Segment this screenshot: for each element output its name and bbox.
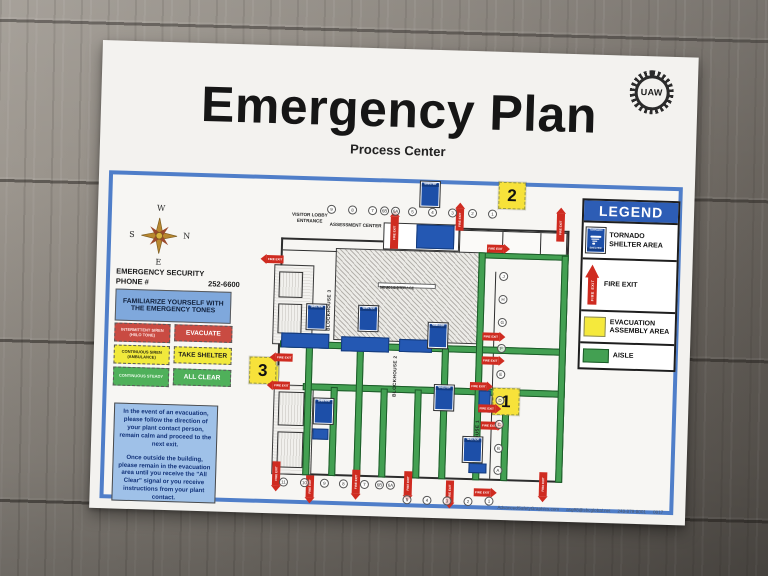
grid-col-bottom: 7 xyxy=(360,480,369,489)
tone-row-evacuate: INTERMITTENT SIREN (HI/LO TONE) EVACUATE xyxy=(114,322,233,344)
grid-col-bottom: 11 xyxy=(279,477,288,486)
aisle-horizontal-topright xyxy=(479,252,569,261)
grid-col-bottom: 8 xyxy=(339,479,348,488)
fire-exit-arrow-down-3: FIRE EXIT xyxy=(352,470,361,494)
sign-word-shelter: SHELTER xyxy=(587,248,604,251)
fire-exit-arrow-left-1: FIRE EXIT xyxy=(266,255,283,264)
grid-col-top: 4 xyxy=(428,208,437,217)
aisle-vertical-3 xyxy=(353,346,364,477)
tone-action-allclear: ALL CLEAR xyxy=(173,368,231,387)
evacuation-area-swatch-icon xyxy=(583,316,606,337)
legend-row-tornado: TORNADO SHELTER TORNADO SHELTER AREA xyxy=(583,220,678,260)
tornado-sign-mid-right: TORNADOSHELTER xyxy=(428,323,448,349)
tone-signal-allclear: CONTINUOUS STEADY xyxy=(113,366,170,387)
legend-label-evacuation-area: EVACUATION ASSEMBLY AREA xyxy=(609,319,671,338)
grid-col-top: 2 xyxy=(468,209,477,218)
tornado-sign-low-center: TORNADOSHELTER xyxy=(434,385,454,411)
fire-exit-arrow-text: FIRE EXIT xyxy=(590,280,595,302)
fire-exit-arrow-right-2: FIRE EXIT xyxy=(482,332,499,341)
fire-exit-arrow-left-3: FIRE EXIT xyxy=(273,381,290,390)
aisle-vertical-4 xyxy=(378,388,388,477)
fire-exit-arrow-down-4: FIRE EXIT xyxy=(404,471,413,495)
vehicle-storage-area: VEHICLE STORAGE 147,000 SQ FT xyxy=(333,248,480,344)
visitor-lobby-label: VISITOR LOBBY ENTRANCE xyxy=(286,212,334,225)
compass-west-label: W xyxy=(157,204,165,213)
notice-paragraph-1: In the event of an evacuation, please fo… xyxy=(117,408,214,450)
evacuation-notice: In the event of an evacuation, please fo… xyxy=(111,402,218,503)
aisle-vertical-5 xyxy=(412,389,422,478)
legend-row-evacuation-area: EVACUATION ASSEMBLY AREA xyxy=(580,309,675,344)
grid-col-top: 1 xyxy=(488,210,497,219)
grid-col-bottom: 9 xyxy=(320,479,329,488)
grid-col-top: 9 xyxy=(327,205,336,214)
tones-header-box: FAMILIARIZE YOURSELF WITH THE EMERGENCY … xyxy=(115,288,232,323)
legend-row-fire-exit: FIRE EXIT FIRE EXIT xyxy=(581,257,677,312)
security-phone: 252-6600 xyxy=(208,279,240,289)
tornado-sign-low-left: TORNADOSHELTER xyxy=(314,398,334,424)
tornado-sign-mid-center: TORNADOSHELTER xyxy=(358,306,378,332)
fire-exit-arrow-up-3: FIRE EXIT xyxy=(556,214,565,242)
vehicle-storage-sqft: 147,000 SQ FT xyxy=(380,285,405,290)
shelter-zone-2 xyxy=(341,336,389,352)
sign-word-tornado: TORNADO xyxy=(589,230,602,233)
tone-table: INTERMITTENT SIREN (HI/LO TONE) EVACUATE… xyxy=(113,322,233,388)
shelter-zone-annex xyxy=(416,224,455,249)
tone-action-shelter: TAKE SHELTER xyxy=(173,346,231,365)
compass-star-icon xyxy=(141,217,178,254)
compass-south-label: S xyxy=(129,230,135,239)
printer-phone: 248-879-8001 xyxy=(617,508,646,514)
emergency-plan-poster: Emergency Plan Process Center UAW W N S … xyxy=(89,40,699,525)
printer-code: 0817 xyxy=(653,510,663,515)
fire-exit-arrow-left-2: FIRE EXIT xyxy=(276,353,293,362)
aisle-swatch-icon xyxy=(583,348,609,363)
legend-label-aisle: AISLE xyxy=(613,352,634,361)
tone-signal-evacuate: INTERMITTENT SIREN (HI/LO TONE) xyxy=(114,322,171,343)
grid-col-bottom: 6B xyxy=(375,480,384,489)
emergency-security-block: EMERGENCY SECURITY PHONE # 252-6600 xyxy=(116,266,241,289)
photo-background: Emergency Plan Process Center UAW W N S … xyxy=(0,0,768,576)
printer-email: asg98@sbcglobal.net xyxy=(566,507,610,513)
compass-north-label: N xyxy=(183,231,190,240)
wall-top-left xyxy=(281,237,385,242)
shelter-zone-6 xyxy=(468,463,486,474)
legend-title: LEGEND xyxy=(584,200,679,223)
printer-website: AdvancedSafetyGraphics.com xyxy=(497,505,559,512)
fire-exit-arrow-right-1: FIRE EXIT xyxy=(487,244,504,253)
fire-exit-arrow-icon: FIRE EXIT xyxy=(584,264,600,304)
tone-signal-shelter: CONTINUOUS SIREN (AMBULANCE) xyxy=(113,344,170,365)
vehicle-storage-label: VEHICLE STORAGE 147,000 SQ FT xyxy=(378,283,436,290)
tone-action-evacuate: EVACUATE xyxy=(174,324,232,343)
fire-exit-arrow-up-1: FIRE EXIT xyxy=(390,217,399,249)
uaw-logo-text: UAW xyxy=(634,74,670,110)
tone-row-allclear: CONTINUOUS STEADY ALL CLEAR xyxy=(113,366,232,388)
legend-label-fire-exit: FIRE EXIT xyxy=(604,281,638,290)
compass-east-label: E xyxy=(155,258,161,267)
shelter-zone-4 xyxy=(312,428,328,439)
fire-exit-arrow-right-5: FIRE EXIT xyxy=(478,404,495,413)
aisle-vertical-6 xyxy=(438,348,449,479)
legend-row-aisle: AISLE xyxy=(580,341,675,370)
assessment-center-label: ASSESSMENT CENTER xyxy=(330,222,382,229)
grid-col-top: 8 xyxy=(348,205,357,214)
legend-box: LEGEND TORNADO SHELTER TORNADO SHELTER A… xyxy=(577,198,680,372)
tornado-funnel-icon xyxy=(590,236,601,245)
grid-col-top: 7 xyxy=(368,206,377,215)
tornado-sign-mid-left: TORNADOSHELTER xyxy=(307,304,327,330)
fire-exit-arrow-down-6: FIRE EXIT xyxy=(539,472,548,496)
notice-paragraph-2: Once outside the building, please remain… xyxy=(115,453,212,503)
security-line2: PHONE # xyxy=(116,276,149,286)
assembly-badge-2: 2 xyxy=(498,182,526,210)
fire-exit-arrow-right-3: FIRE EXIT xyxy=(482,356,499,365)
blockhouse-3-label: BLOCKHOUSE 3 xyxy=(325,273,332,331)
fire-exit-arrow-right-7: FIRE EXIT xyxy=(474,488,491,497)
aisle-vertical-right-edge xyxy=(555,256,569,483)
grid-col-top: 5 xyxy=(408,207,417,216)
tornado-sign-low-right: TORNADOSHELTER xyxy=(463,437,483,463)
floor-plan: VEHICLE STORAGE 147,000 SQ FT xyxy=(263,185,574,508)
grid-row-side: E xyxy=(496,370,505,379)
grid-col-bottom: 5 xyxy=(402,495,411,504)
grid-row-side: G xyxy=(498,318,507,327)
shelter-zone-1 xyxy=(281,332,329,348)
grid-col-top: 6B xyxy=(380,206,389,215)
grid-row-side: J xyxy=(499,272,508,281)
tone-row-shelter: CONTINUOUS SIREN (AMBULANCE) TAKE SHELTE… xyxy=(113,344,232,366)
fire-exit-arrow-right-4: FIRE EXIT xyxy=(470,382,487,391)
grid-col-bottom: 4 xyxy=(422,496,431,505)
grid-col-bottom: 6A xyxy=(386,481,395,490)
grid-col-bottom: 1 xyxy=(484,497,493,506)
grid-row-side: H xyxy=(498,295,507,304)
grid-col-bottom: 2 xyxy=(463,497,472,506)
tornado-shelter-sign-icon: TORNADO SHELTER xyxy=(586,227,606,253)
legend-label-tornado: TORNADO SHELTER AREA xyxy=(609,232,674,251)
tornado-sign-top: TORNADOSHELTER xyxy=(420,181,440,207)
compass-rose: W N S E xyxy=(126,203,192,269)
plan-panel: W N S E EMERGENCY SECURITY PHONE # 252-6… xyxy=(99,170,682,515)
